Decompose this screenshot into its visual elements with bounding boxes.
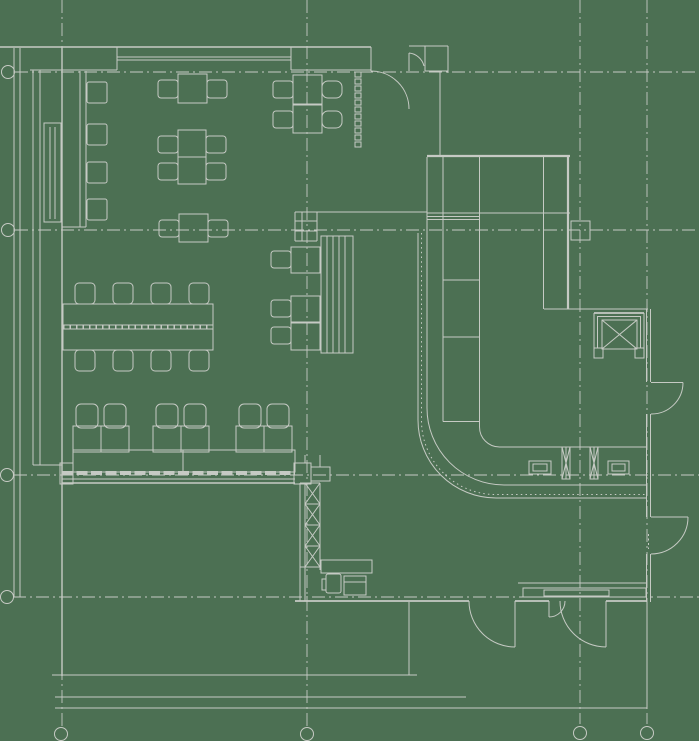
paper-background xyxy=(0,0,699,741)
floor-plan-canvas: Cafe floor plan - CAD top-down drawing xyxy=(0,0,699,741)
floor-plan-svg: Cafe floor plan - CAD top-down drawing xyxy=(0,0,699,741)
